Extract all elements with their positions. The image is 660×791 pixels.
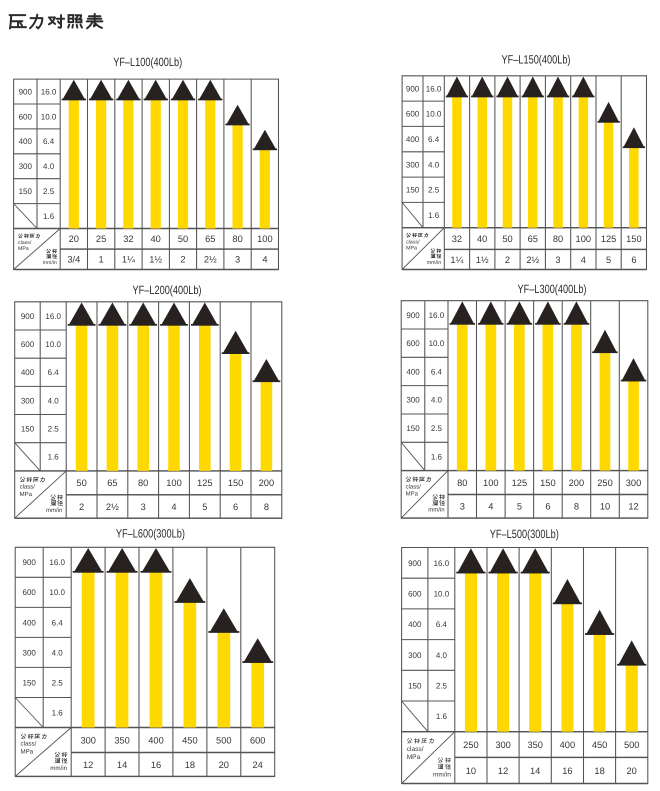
svg-text:4.0: 4.0 [431,396,443,405]
svg-text:25: 25 [96,234,106,244]
svg-text:600: 600 [23,588,37,597]
svg-text:900: 900 [19,88,33,97]
svg-text:3: 3 [555,255,560,265]
svg-text:16.0: 16.0 [429,311,445,320]
svg-text:900: 900 [23,558,37,567]
svg-text:6.4: 6.4 [431,367,443,376]
svg-text:100: 100 [166,478,182,488]
svg-text:10.0: 10.0 [426,110,442,119]
svg-text:80: 80 [232,234,242,244]
svg-text:400: 400 [406,367,420,376]
svg-text:200: 200 [259,478,275,488]
svg-text:4: 4 [581,255,586,265]
svg-text:12: 12 [83,760,93,770]
svg-text:14: 14 [530,766,540,776]
svg-text:300: 300 [406,160,420,169]
svg-text:10: 10 [466,766,476,776]
svg-text:6: 6 [233,502,238,512]
svg-text:4.0: 4.0 [436,651,448,660]
svg-text:125: 125 [601,234,617,244]
svg-text:MPa: MPa [406,491,419,498]
svg-text:16.0: 16.0 [49,558,65,567]
svg-text:5: 5 [606,255,611,265]
svg-text:14: 14 [117,760,127,770]
svg-text:10.0: 10.0 [434,590,450,599]
svg-text:65: 65 [528,234,538,244]
svg-text:350: 350 [527,740,543,750]
svg-text:6.4: 6.4 [52,618,64,627]
svg-text:class/: class/ [406,483,422,490]
svg-text:150: 150 [408,682,422,691]
svg-text:450: 450 [592,740,608,750]
svg-text:150: 150 [21,425,35,434]
svg-text:class/: class/ [407,746,424,753]
svg-text:YF–L200(400Lb): YF–L200(400Lb) [133,283,202,297]
svg-text:100: 100 [576,234,592,244]
svg-text:150: 150 [406,186,420,195]
svg-text:80: 80 [138,478,148,488]
svg-text:125: 125 [197,478,213,488]
svg-text:125: 125 [512,478,528,488]
svg-text:20: 20 [627,766,637,776]
svg-text:3/4: 3/4 [67,255,80,265]
svg-text:18: 18 [185,760,195,770]
svg-text:1.6: 1.6 [428,211,440,220]
svg-text:4.0: 4.0 [43,162,55,171]
svg-text:80: 80 [553,234,563,244]
svg-text:400: 400 [406,135,420,144]
svg-text:600: 600 [408,590,422,599]
svg-text:12: 12 [498,766,508,776]
svg-text:2½: 2½ [204,255,217,265]
svg-text:class/: class/ [406,239,420,245]
svg-text:24: 24 [253,760,263,770]
svg-text:YF–L600(300Lb): YF–L600(300Lb) [116,527,185,541]
svg-text:mm/in: mm/in [43,260,57,266]
svg-text:16.0: 16.0 [426,84,442,93]
svg-text:300: 300 [495,740,511,750]
svg-text:2.5: 2.5 [48,425,60,434]
svg-text:MPa: MPa [407,754,421,761]
svg-text:1½: 1½ [149,255,162,265]
svg-text:6.4: 6.4 [436,620,448,629]
svg-text:10.0: 10.0 [41,112,57,121]
svg-text:6: 6 [545,502,550,512]
svg-text:MPa: MPa [18,246,29,252]
svg-text:10.0: 10.0 [49,588,65,597]
svg-text:10.0: 10.0 [429,339,445,348]
svg-text:150: 150 [406,424,420,433]
svg-text:40: 40 [151,234,161,244]
svg-text:450: 450 [182,735,198,745]
svg-text:16.0: 16.0 [41,88,57,97]
svg-text:300: 300 [19,162,33,171]
svg-text:1¼: 1¼ [450,255,463,265]
svg-text:150: 150 [540,478,556,488]
svg-text:2.5: 2.5 [436,682,448,691]
svg-text:300: 300 [23,648,37,657]
svg-text:4.0: 4.0 [428,160,440,169]
svg-text:300: 300 [80,735,96,745]
svg-text:80: 80 [457,478,467,488]
svg-text:2.5: 2.5 [43,187,55,196]
svg-text:3: 3 [141,502,146,512]
svg-text:250: 250 [463,740,479,750]
svg-text:65: 65 [107,478,117,488]
svg-text:65: 65 [205,234,215,244]
svg-text:class/: class/ [21,741,37,748]
svg-text:YF–L300(400Lb): YF–L300(400Lb) [518,282,587,296]
svg-text:1.6: 1.6 [43,212,55,221]
svg-text:1.6: 1.6 [431,452,443,461]
svg-text:500: 500 [216,735,232,745]
svg-text:150: 150 [228,478,244,488]
svg-text:4.0: 4.0 [48,396,60,405]
svg-text:900: 900 [21,312,35,321]
svg-text:600: 600 [406,339,420,348]
svg-text:1.6: 1.6 [48,453,60,462]
svg-text:400: 400 [148,735,164,745]
svg-text:100: 100 [483,478,499,488]
svg-text:16: 16 [151,760,161,770]
svg-text:4: 4 [171,502,176,512]
svg-text:2: 2 [505,255,510,265]
svg-text:class/: class/ [20,484,36,491]
svg-text:10: 10 [600,502,610,512]
svg-text:16.0: 16.0 [434,559,450,568]
svg-text:6: 6 [631,255,636,265]
svg-text:16.0: 16.0 [45,312,61,321]
svg-text:400: 400 [19,137,33,146]
svg-text:YF–L100(400Lb): YF–L100(400Lb) [113,55,182,69]
svg-text:300: 300 [21,396,35,405]
svg-text:2: 2 [180,255,185,265]
svg-text:MPa: MPa [406,246,417,252]
svg-text:150: 150 [626,234,642,244]
svg-text:900: 900 [408,559,422,568]
svg-text:50: 50 [76,478,86,488]
svg-text:300: 300 [406,396,420,405]
svg-text:20: 20 [69,234,79,244]
svg-text:900: 900 [406,311,420,320]
svg-text:YF–L150(400Lb): YF–L150(400Lb) [502,53,571,67]
svg-text:300: 300 [408,651,422,660]
svg-text:5: 5 [202,502,207,512]
svg-text:10.0: 10.0 [45,340,61,349]
svg-text:100: 100 [257,234,273,244]
svg-text:32: 32 [452,234,462,244]
svg-text:600: 600 [250,735,266,745]
svg-text:40: 40 [477,234,487,244]
svg-text:4: 4 [262,255,267,265]
svg-text:class/: class/ [18,240,32,246]
svg-text:400: 400 [408,620,422,629]
svg-text:32: 32 [123,234,133,244]
svg-text:2: 2 [79,502,84,512]
svg-text:400: 400 [560,740,576,750]
svg-text:18: 18 [594,766,604,776]
svg-text:mm/in: mm/in [50,765,67,772]
svg-text:mm/in: mm/in [428,507,444,514]
svg-text:3: 3 [235,255,240,265]
svg-text:8: 8 [574,502,579,512]
svg-text:400: 400 [21,368,35,377]
svg-text:300: 300 [626,478,642,488]
svg-text:12: 12 [628,502,638,512]
svg-text:3: 3 [460,502,465,512]
svg-text:2.5: 2.5 [52,678,64,687]
svg-text:6.4: 6.4 [48,368,60,377]
svg-text:8: 8 [264,502,269,512]
svg-text:4: 4 [488,502,493,512]
svg-text:5: 5 [517,502,522,512]
svg-text:250: 250 [597,478,613,488]
svg-text:200: 200 [569,478,585,488]
svg-text:600: 600 [21,340,35,349]
svg-text:MPa: MPa [21,748,34,755]
svg-text:2½: 2½ [526,255,539,265]
svg-text:2.5: 2.5 [431,424,443,433]
svg-text:6.4: 6.4 [43,137,55,146]
svg-text:YF–L500(300Lb): YF–L500(300Lb) [490,527,559,541]
svg-text:400: 400 [23,618,37,627]
svg-text:50: 50 [502,234,512,244]
svg-text:2½: 2½ [106,502,119,512]
svg-text:1.6: 1.6 [436,712,448,721]
svg-text:mm/in: mm/in [46,507,62,514]
svg-text:600: 600 [406,110,420,119]
svg-text:MPa: MPa [20,491,33,498]
svg-text:4.0: 4.0 [52,648,64,657]
svg-text:50: 50 [178,234,188,244]
svg-text:mm/in: mm/in [433,772,451,779]
svg-text:150: 150 [19,187,33,196]
svg-text:900: 900 [406,84,420,93]
svg-text:600: 600 [19,112,33,121]
svg-text:150: 150 [23,678,37,687]
svg-text:6.4: 6.4 [428,135,440,144]
svg-text:16: 16 [562,766,572,776]
svg-text:350: 350 [114,735,130,745]
svg-text:1: 1 [99,255,104,265]
svg-text:mm/in: mm/in [427,260,441,266]
svg-text:500: 500 [624,740,640,750]
svg-text:1¼: 1¼ [122,255,135,265]
svg-text:2.5: 2.5 [428,186,440,195]
svg-text:1.6: 1.6 [52,708,64,717]
svg-text:1½: 1½ [476,255,489,265]
svg-text:20: 20 [219,760,229,770]
